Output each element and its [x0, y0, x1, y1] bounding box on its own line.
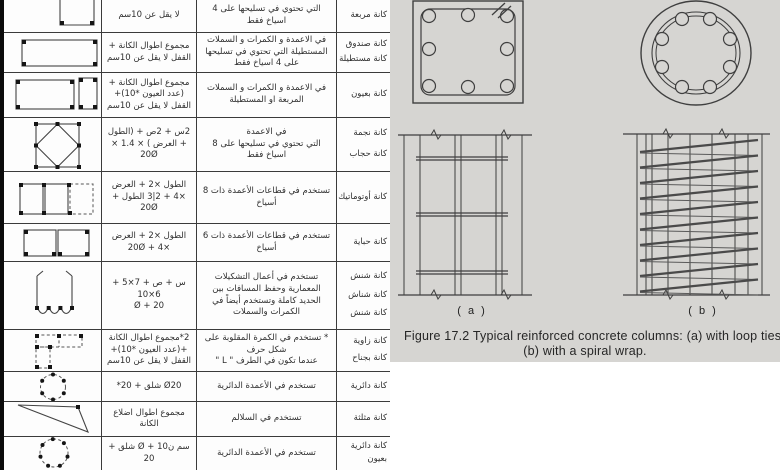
stirrup-name-cell: كانة مربعة — [337, 0, 389, 32]
usage-cell: التي تحتوي في تسليحها على 4 اسياخ فقط — [197, 0, 337, 32]
figure-label-a: ( a ) — [442, 305, 502, 317]
triangular-stirrup-icon — [4, 402, 102, 436]
table-row: الطول ×2 + العرض ×4 + 20Øتستخدم في قطاعا… — [4, 224, 390, 262]
square-stirrup-icon — [4, 0, 102, 32]
figure-caption-line1: Figure 17.2 Typical reinforced concrete … — [404, 329, 780, 343]
usage-cell: تستخدم في الأعمدة الدائرية — [197, 437, 337, 470]
eyed-stirrup-icon — [4, 73, 102, 117]
stirrup-name-cell: كانة دائرية — [337, 372, 389, 401]
stirrup-name-cell: كانة بعيون — [337, 73, 389, 117]
stirrup-name-cell: كانة صندوقكانة مستطيلة — [337, 33, 389, 72]
shenesh-stirrup-icon — [4, 262, 102, 329]
table-row: الطول ×2 + العرض ×4 + 2|3 الطول + 20Øتست… — [4, 172, 390, 224]
automatic-stirrup-icon — [4, 172, 102, 223]
length-formula-cell: 2س + 2ص + (الطول + العرض ) × 1.4 × 20Ø — [102, 118, 197, 171]
length-formula-cell: مجموع اطوال الكانة +(عدد العيون *10)+ ال… — [102, 73, 197, 117]
star-stirrup-icon — [4, 118, 102, 171]
figure-label-b: ( b ) — [673, 305, 733, 317]
length-formula-cell: مجموع اطوال اضلاع الكانة — [102, 402, 197, 436]
figure-17-2: ( a ) ( b ) Figure 17.2 Typical reinforc… — [390, 0, 780, 470]
length-formula-cell: الطول ×2 + العرض ×4 + 20Ø — [102, 224, 197, 261]
length-formula-cell: 2*مجموع اطوال الكانة +(عدد العيون *10)+ … — [102, 330, 197, 371]
usage-cell: في الاعمدة التي تحتوي في تسليحها على 8 ا… — [197, 118, 337, 171]
usage-cell: تستخدم في السلالم — [197, 402, 337, 436]
table-rows: لا يقل عن 10سمالتي تحتوي في تسليحها على … — [4, 0, 390, 470]
stirrup-name-cell: كانة نجمةكانة حجاب — [337, 118, 389, 171]
rect-stirrup-icon — [4, 33, 102, 72]
table-row: مجموع اطوال الكانة + القفل لا يقل عن 10س… — [4, 33, 390, 73]
table-row: س + ص + 7×5 + 6×10 20 + Øتستخدم في أعمال… — [4, 262, 390, 330]
usage-cell: تستخدم في قطاعات الأعمدة ذات 6 أسياخ — [197, 224, 337, 261]
stirrup-name-cell: كانة أوتوماتيك — [337, 172, 389, 223]
stirrup-name-cell: كانة شنشكانة شناشكانة شنش — [337, 262, 389, 329]
length-formula-cell: سم ن10 + Ø شلق + 20 — [102, 437, 197, 470]
circular-eyed-stirrup-icon — [4, 437, 102, 470]
usage-cell: تستخدم في أعمال التشكيلات المعمارية وحفظ… — [197, 262, 337, 329]
table-row: سم ن10 + Ø شلق + 20تستخدم في الأعمدة الد… — [4, 437, 390, 470]
hbaya-stirrup-icon — [4, 224, 102, 261]
usage-cell: * تستخدم في الكمرة المقلوبة على شكل حرف … — [197, 330, 337, 371]
usage-cell: في الاعمدة و الكمرات و السملات المربعة ا… — [197, 73, 337, 117]
table-row: Ø20 شلق + 20*تستخدم في الأعمدة الدائريةك… — [4, 372, 390, 402]
length-formula-cell: الطول ×2 + العرض ×4 + 2|3 الطول + 20Ø — [102, 172, 197, 223]
stirrup-types-table: لا يقل عن 10سمالتي تحتوي في تسليحها على … — [0, 0, 390, 470]
figure-caption-line2: (b) with a spiral wrap. — [390, 344, 780, 358]
stirrup-name-cell: كانة مثلثة — [337, 402, 389, 436]
stirrup-name-cell: كانة دائريةبعيون — [337, 437, 389, 470]
stirrup-name-cell: كانة زاويةكانة بجناح — [337, 330, 389, 371]
reinforced-column-drawing — [390, 0, 780, 470]
table-row: 2س + 2ص + (الطول + العرض ) × 1.4 × 20Øفي… — [4, 118, 390, 172]
circular-ties-stirrup-icon-angle — [4, 330, 102, 371]
usage-cell: تستخدم في الأعمدة الدائرية — [197, 372, 337, 401]
length-formula-cell: س + ص + 7×5 + 6×10 20 + Ø — [102, 262, 197, 329]
page: لا يقل عن 10سمالتي تحتوي في تسليحها على … — [0, 0, 780, 470]
length-formula-cell: مجموع اطوال الكانة + القفل لا يقل عن 10س… — [102, 33, 197, 72]
usage-cell: في الاعمدة و الكمرات و السملات المستطيلة… — [197, 33, 337, 72]
table-row: مجموع اطوال اضلاع الكانةتستخدم في السلال… — [4, 402, 390, 437]
circular-stirrup-icon — [4, 372, 102, 401]
length-formula-cell: لا يقل عن 10سم — [102, 0, 197, 32]
length-formula-cell: Ø20 شلق + 20* — [102, 372, 197, 401]
usage-cell: تستخدم في قطاعات الأعمدة ذات 8 أسياخ — [197, 172, 337, 223]
stirrup-name-cell: كانة حباية — [337, 224, 389, 261]
table-row: مجموع اطوال الكانة +(عدد العيون *10)+ ال… — [4, 73, 390, 118]
table-row: 2*مجموع اطوال الكانة +(عدد العيون *10)+ … — [4, 330, 390, 372]
table-row: لا يقل عن 10سمالتي تحتوي في تسليحها على … — [4, 0, 390, 33]
